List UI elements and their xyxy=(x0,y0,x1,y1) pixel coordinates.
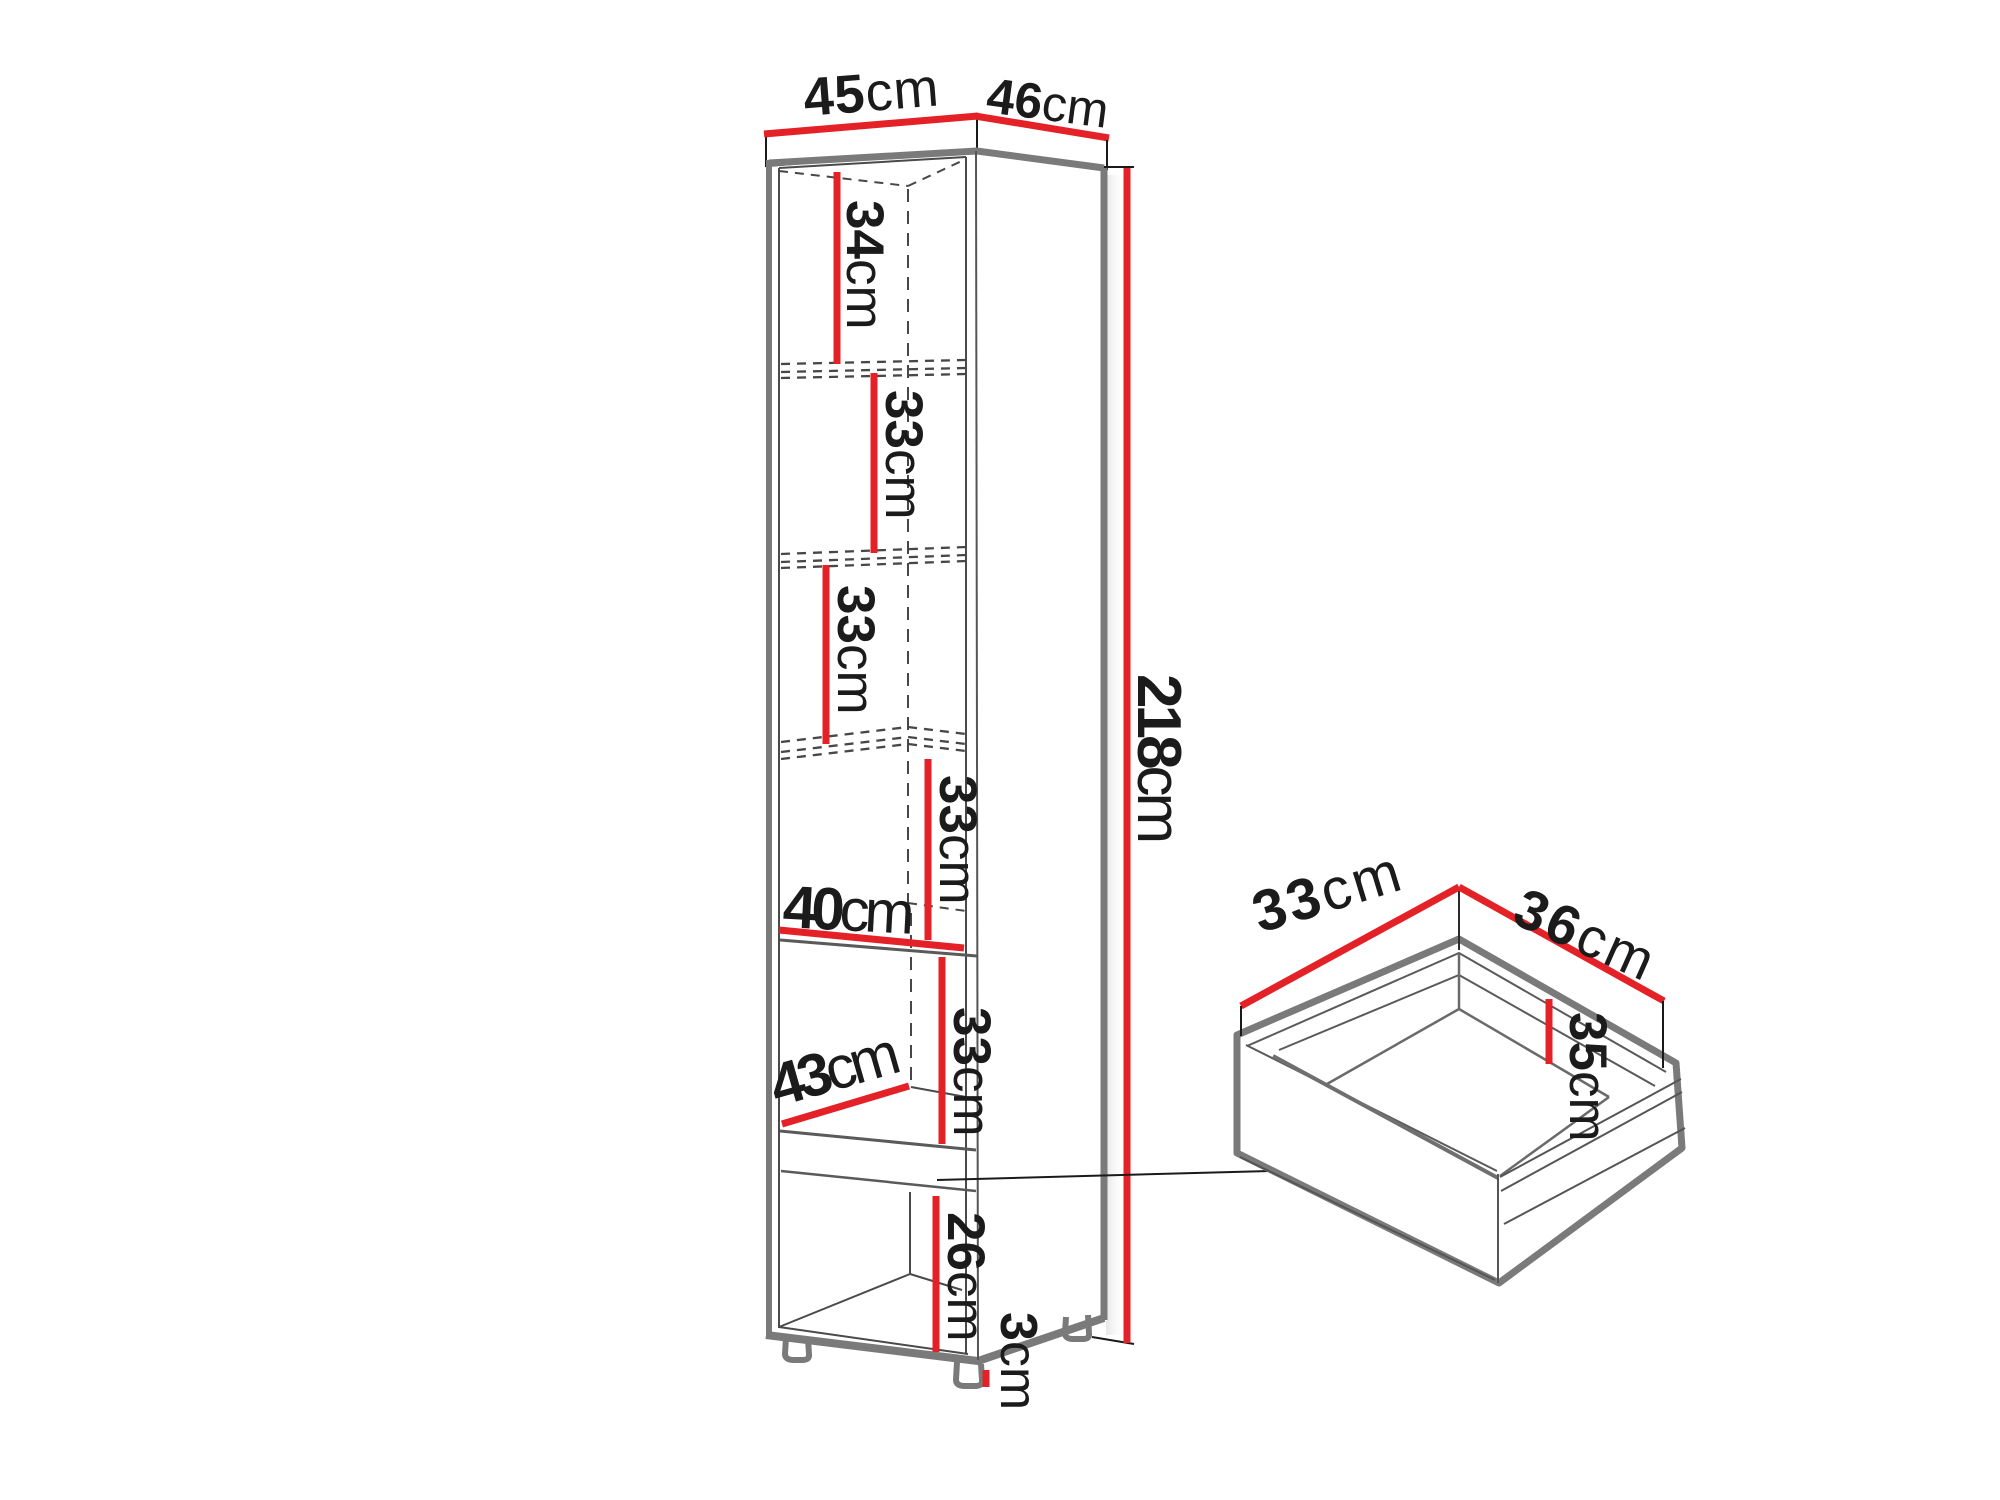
svg-text:33cm: 33cm xyxy=(942,1007,1001,1137)
svg-text:3cm: 3cm xyxy=(989,1312,1047,1410)
svg-text:40cm: 40cm xyxy=(781,873,913,947)
svg-text:218cm: 218cm xyxy=(1124,674,1193,840)
svg-text:33cm: 33cm xyxy=(826,585,885,715)
svg-text:26cm: 26cm xyxy=(936,1212,995,1342)
svg-text:33cm: 33cm xyxy=(928,775,987,905)
svg-text:33cm: 33cm xyxy=(874,390,933,520)
svg-text:35cm: 35cm xyxy=(1558,1012,1617,1142)
svg-text:34cm: 34cm xyxy=(835,200,894,330)
svg-text:45cm: 45cm xyxy=(801,57,941,127)
svg-text:43cm: 43cm xyxy=(762,1020,904,1120)
